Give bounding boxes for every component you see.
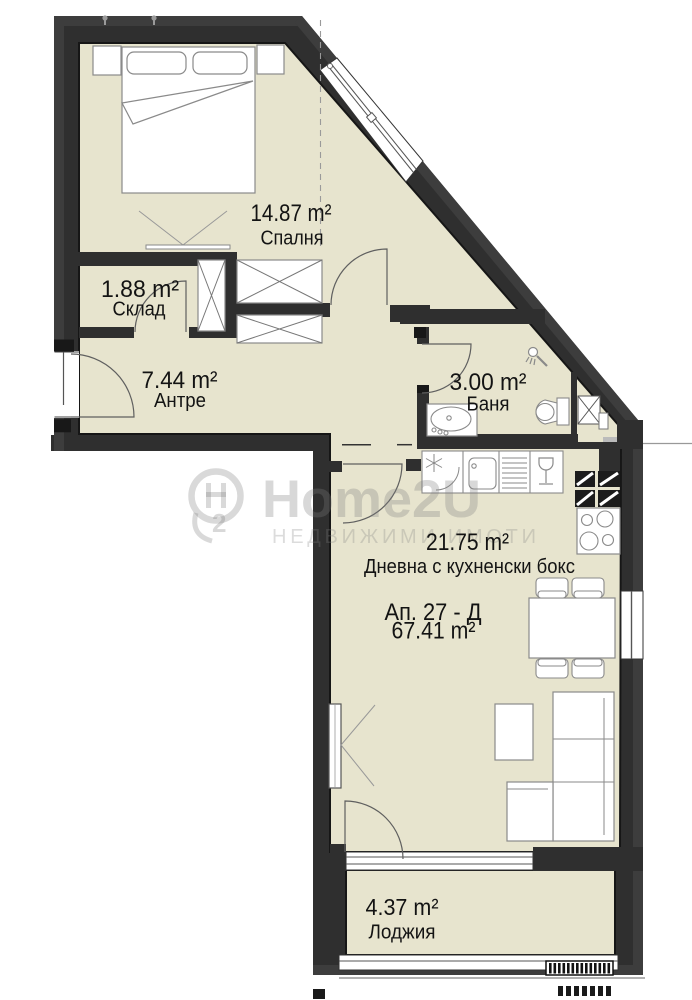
svg-text:Home2U: Home2U [262,470,481,529]
svg-text:Склад: Склад [113,299,166,321]
svg-text:Спалня: Спалня [261,228,324,250]
svg-text:2: 2 [212,508,226,538]
svg-text:67.41 m²: 67.41 m² [392,618,476,645]
svg-text:21.75 m²: 21.75 m² [426,529,509,556]
svg-text:4.37 m²: 4.37 m² [366,894,439,920]
svg-text:Лоджия: Лоджия [369,922,436,944]
svg-text:14.87 m²: 14.87 m² [251,200,332,227]
svg-text:Дневна с кухненски бокс: Дневна с кухненски бокс [364,556,575,578]
svg-text:3.00 m²: 3.00 m² [450,369,527,396]
svg-text:Баня: Баня [467,394,510,416]
svg-text:Антре: Антре [154,390,206,412]
